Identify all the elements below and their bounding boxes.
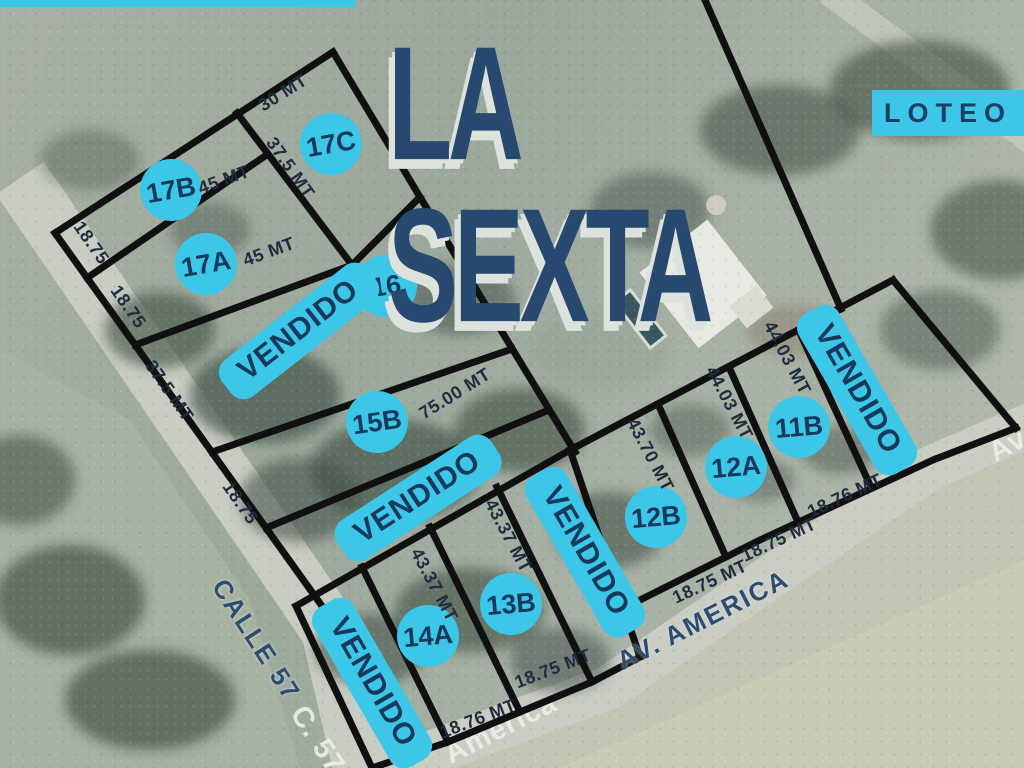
top-accent-strip [0, 0, 356, 7]
page-title: LA SEXTA [388, 22, 833, 346]
lot-map-flyer: C. 57AméricaAv 17B17C17A1615B14A13B12B12… [0, 0, 1024, 768]
loteo-tag: LOTEO [872, 90, 1024, 136]
